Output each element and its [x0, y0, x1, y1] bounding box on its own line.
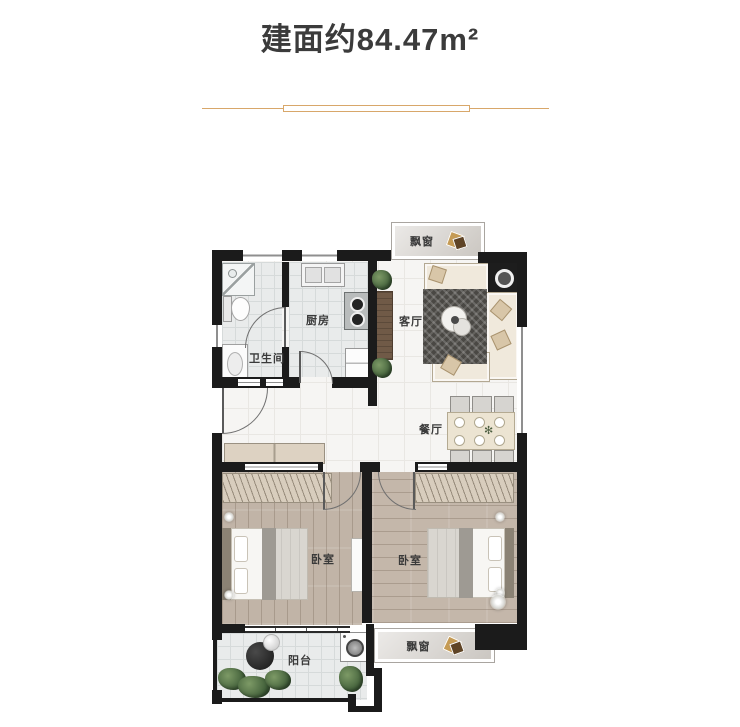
bed-pillow	[234, 568, 248, 594]
wall-inset	[245, 464, 318, 470]
headboard	[505, 528, 514, 598]
kitchen-sink	[301, 263, 345, 287]
window	[517, 327, 527, 433]
table-lamp-icon	[495, 269, 514, 288]
shower	[222, 263, 255, 296]
wall	[217, 698, 355, 702]
decor-star-icon	[443, 636, 463, 656]
window	[302, 250, 337, 261]
wall	[475, 624, 527, 650]
bathroom-door-leaf	[284, 307, 286, 347]
page-title: 建面约84.47m²	[0, 14, 740, 59]
wardrobe	[415, 473, 514, 503]
wall-inset	[418, 464, 447, 470]
sink-basin	[324, 267, 341, 283]
wall-step	[348, 706, 382, 712]
floor-lamp-icon	[490, 594, 506, 610]
bathroom-label: 卫生间	[245, 353, 289, 366]
bed-pillow	[234, 536, 248, 562]
dining-room-label: 餐厅	[409, 424, 453, 437]
wall	[517, 255, 527, 650]
blanket-band	[459, 528, 473, 598]
plant-icon	[372, 270, 392, 290]
kitchen-label: 厨房	[296, 315, 340, 328]
wall-lamp-icon	[495, 512, 505, 522]
window	[212, 325, 222, 347]
burner-icon	[350, 312, 365, 327]
window	[238, 379, 260, 386]
bay-window-bottom-label: 飘窗	[407, 638, 431, 654]
kitchen-door-leaf	[299, 351, 301, 383]
washer-door-icon	[346, 639, 364, 657]
wall	[360, 462, 380, 472]
wall	[212, 250, 222, 388]
divider-ornament	[283, 105, 470, 112]
blanket-band	[262, 528, 276, 600]
balcony-sliding-door	[245, 626, 350, 633]
bed-pillow	[488, 536, 502, 561]
bay-window-top-label: 飘窗	[410, 233, 434, 249]
bedroom-right-door-leaf	[413, 472, 415, 509]
corner-table	[488, 263, 518, 292]
living-room-label: 客厅	[389, 316, 433, 329]
coffee-table	[441, 306, 469, 336]
bedroom-right-label: 卧室	[388, 555, 432, 568]
plant-icon	[372, 358, 392, 378]
plant-icon	[265, 670, 291, 690]
burner-icon	[350, 297, 365, 312]
washing-machine	[340, 632, 368, 662]
sink-basin	[305, 267, 322, 283]
wall	[282, 262, 289, 307]
wall	[362, 472, 372, 623]
balcony-table	[263, 634, 280, 651]
bedroom-left-label: 卧室	[301, 554, 345, 567]
wall	[366, 624, 374, 668]
bed	[222, 528, 308, 600]
wardrobe	[222, 473, 332, 503]
centerpiece-icon: ✻	[484, 424, 493, 437]
window	[243, 250, 282, 261]
dining-table: ✻	[447, 412, 515, 450]
entry-door-leaf	[222, 388, 224, 433]
bedroom-left-door-leaf	[323, 472, 325, 509]
sink-basin	[227, 352, 243, 376]
floorplan: 飘窗 飘窗	[205, 218, 537, 718]
wall-lamp-icon	[224, 590, 234, 600]
balcony-label: 阳台	[278, 655, 322, 668]
wall-lamp-icon	[224, 512, 234, 522]
bay-window-top: 飘窗	[391, 222, 485, 260]
shoe-cabinet	[224, 443, 325, 464]
decor-star-icon	[446, 231, 466, 251]
stove	[344, 292, 369, 330]
wall-step	[366, 668, 382, 676]
wall	[214, 624, 245, 633]
shower-head-icon	[228, 269, 237, 278]
plant-icon	[339, 666, 363, 692]
wall	[332, 377, 368, 388]
window	[266, 379, 283, 386]
